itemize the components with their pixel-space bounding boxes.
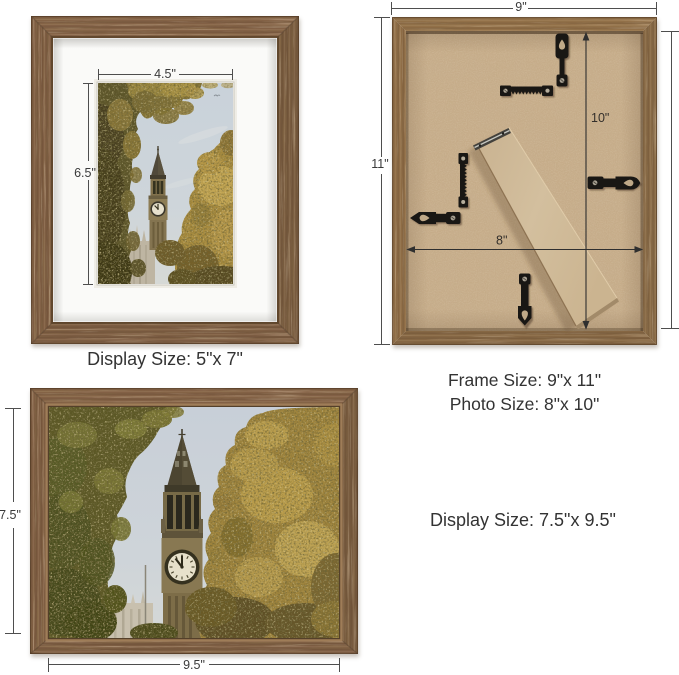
svg-text:10": 10" <box>591 111 609 125</box>
svg-text:8": 8" <box>496 234 507 248</box>
